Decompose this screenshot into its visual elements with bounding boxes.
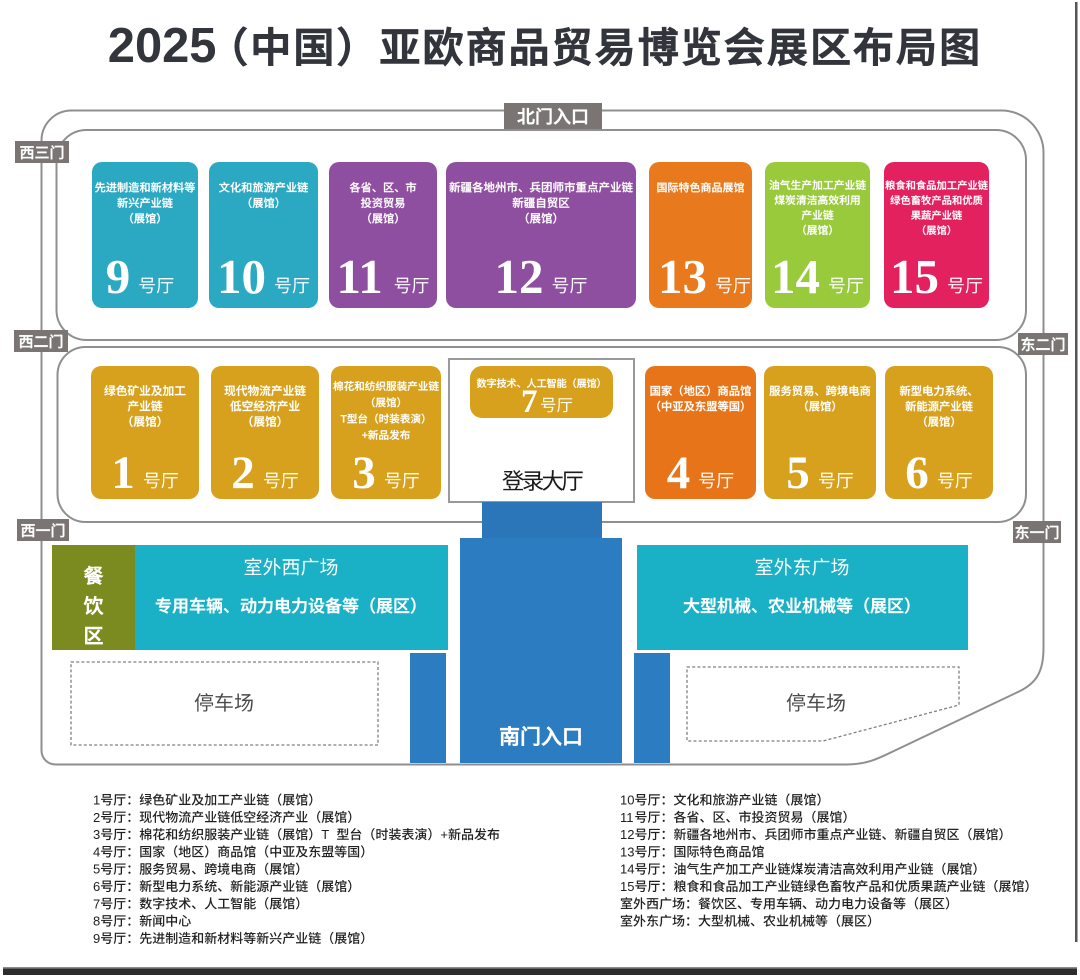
- svg-text:7: 7: [521, 384, 538, 420]
- svg-text:T: T: [321, 827, 329, 842]
- svg-text:9: 9: [93, 931, 100, 946]
- svg-text:15: 15: [890, 249, 939, 304]
- svg-text:13: 13: [620, 844, 634, 859]
- svg-text:11: 11: [337, 249, 383, 304]
- svg-text:3: 3: [93, 827, 100, 842]
- svg-text:12: 12: [495, 249, 544, 304]
- svg-text:14: 14: [771, 249, 820, 304]
- svg-text:1: 1: [93, 793, 100, 808]
- svg-text:2: 2: [231, 447, 255, 499]
- svg-text:6: 6: [905, 447, 929, 499]
- svg-text:13: 13: [658, 249, 707, 304]
- svg-text:12: 12: [620, 827, 634, 842]
- svg-text:T: T: [340, 414, 347, 426]
- svg-text:10: 10: [217, 249, 266, 304]
- svg-text:4: 4: [93, 844, 100, 859]
- svg-text:4: 4: [667, 447, 691, 499]
- svg-text:10: 10: [620, 793, 634, 808]
- svg-text:2025: 2025: [108, 19, 217, 73]
- svg-text:2: 2: [93, 810, 100, 825]
- svg-text:11: 11: [620, 810, 634, 825]
- svg-text:14: 14: [620, 862, 634, 877]
- svg-text:+: +: [440, 827, 448, 842]
- svg-text:6: 6: [93, 879, 100, 894]
- svg-text:9: 9: [106, 249, 131, 304]
- svg-text:7: 7: [93, 896, 100, 911]
- svg-text:8: 8: [93, 914, 100, 929]
- svg-text:1: 1: [111, 447, 135, 499]
- svg-text:3: 3: [352, 447, 376, 499]
- svg-text:15: 15: [620, 879, 634, 894]
- svg-text:5: 5: [786, 447, 810, 499]
- svg-text:5: 5: [93, 862, 100, 877]
- svg-text:+: +: [362, 430, 368, 442]
